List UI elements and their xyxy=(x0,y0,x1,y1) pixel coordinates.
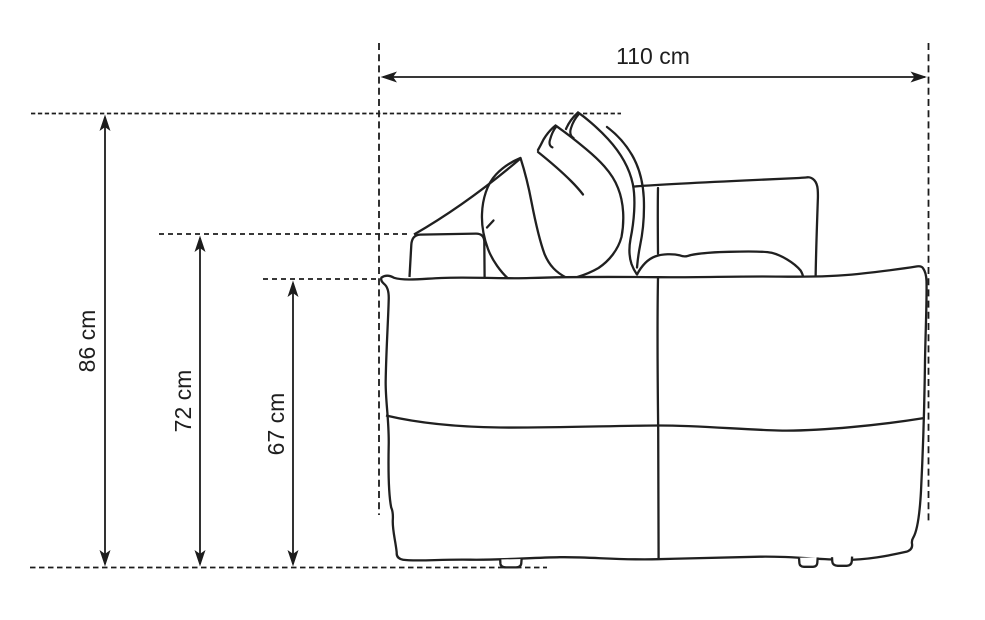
svg-text:110 cm: 110 cm xyxy=(616,43,690,69)
svg-text:67 cm: 67 cm xyxy=(263,393,289,456)
svg-text:86 cm: 86 cm xyxy=(74,310,100,373)
svg-text:72 cm: 72 cm xyxy=(170,370,196,433)
